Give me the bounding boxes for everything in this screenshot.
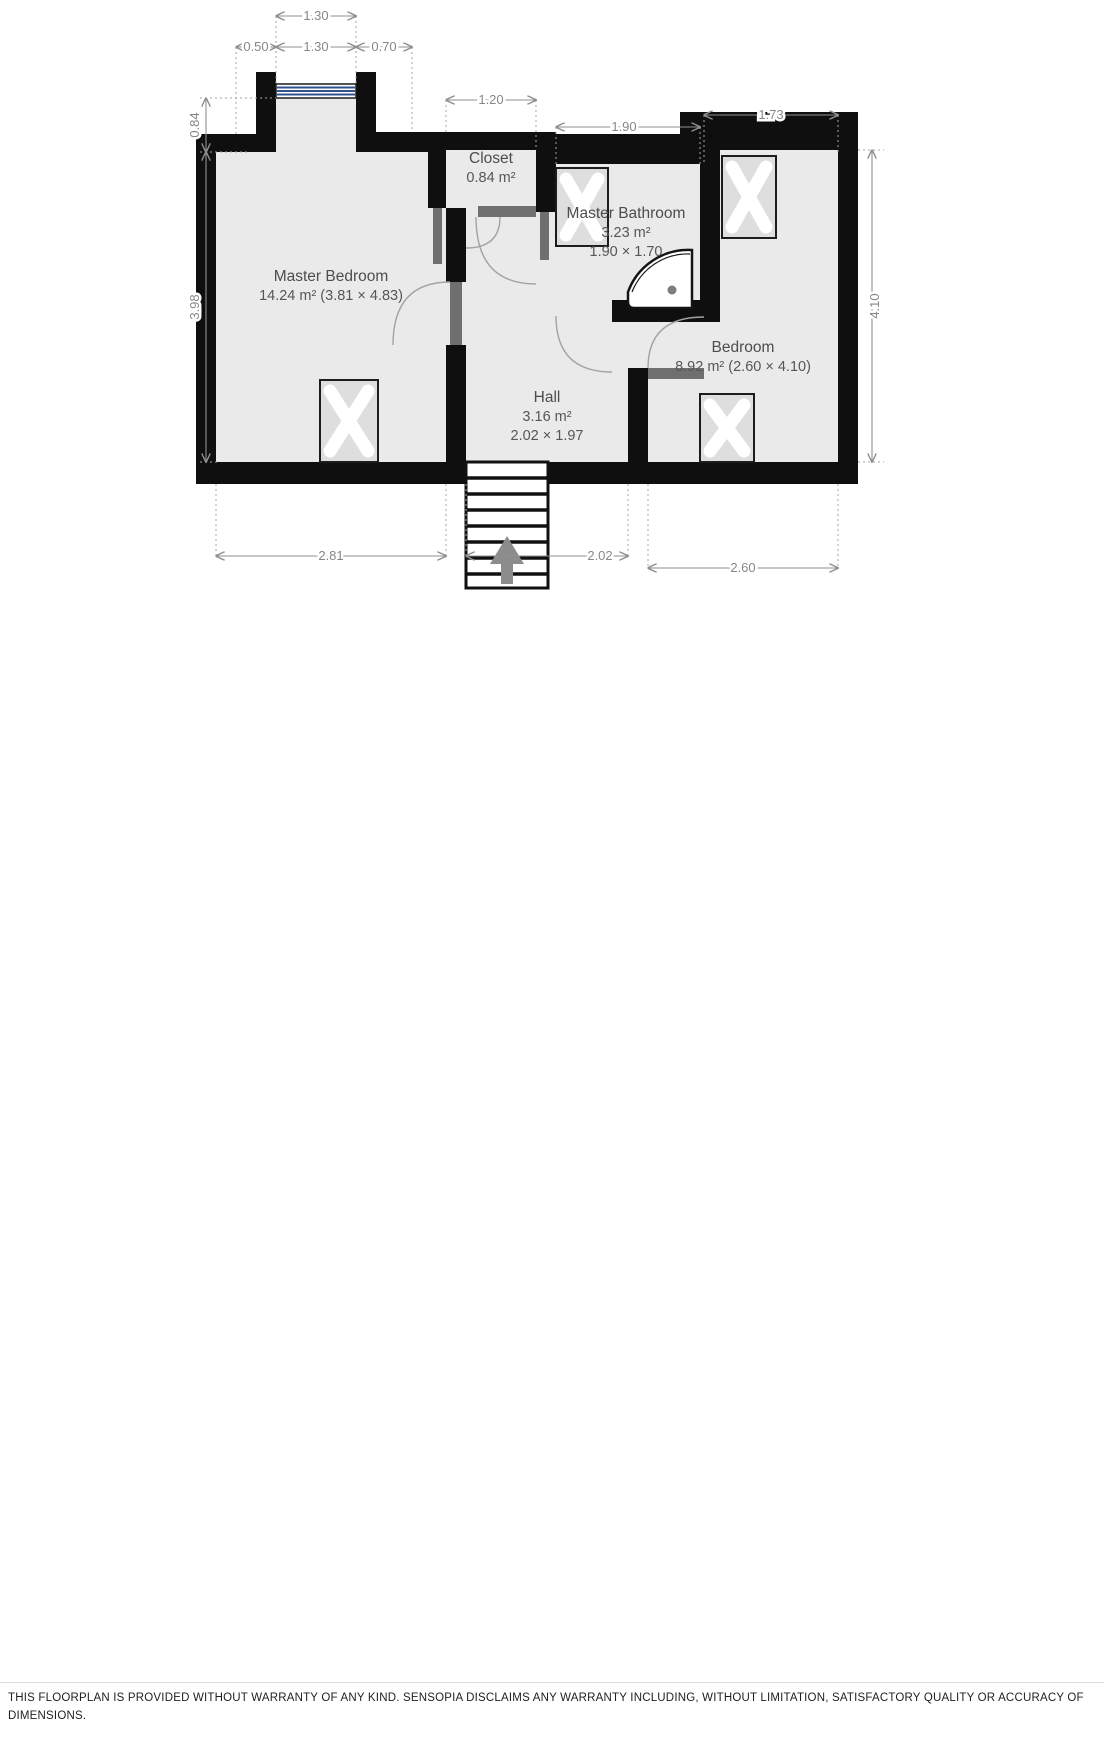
dim-right-of-window: 0.70 [371,39,396,54]
dim-dormer-depth: 0.84 [187,112,202,137]
master-bathroom-size: 1.90 × 1.70 [590,244,663,260]
hall-label: Hall [534,389,561,406]
skylight-icon-bedroom-top [722,156,776,238]
dim-closet-width: 1.20 [478,92,503,107]
bathroom-door-opening-floor [556,300,612,322]
wall-hall-left-lower [446,345,466,484]
master-bedroom-area: 14.24 m² (3.81 × 4.83) [259,288,403,304]
dim-window-width: 1.30 [303,39,328,54]
wall-bathroom-right [700,150,720,322]
dim-hall-width: 2.02 [587,548,612,563]
wall-dormer-right [356,72,376,152]
dim-bathroom-width: 1.90 [611,119,636,134]
closet-door-jamb-left [433,208,442,264]
dim-master-bedroom-height: 3.98 [187,294,202,319]
dim-bedroom-height: 4.10 [867,293,882,318]
wall-bottom-left [196,462,446,484]
wall-bathroom-top [556,134,700,164]
dim-window-width-outer: 1.30 [303,8,328,23]
wall-top-segment [376,132,428,152]
dim-left-of-window: 0.50 [243,39,268,54]
master-bathroom-area: 3.23 m² [601,225,650,241]
bedroom-door-opening-floor [628,322,648,368]
hall-size: 2.02 × 1.97 [511,428,584,444]
shower-drain [668,286,677,295]
closet-area: 0.84 m² [466,170,515,186]
wall-top-left [196,134,258,152]
skylight-icon-bedroom-bottom [700,394,754,462]
closet-door-jamb-right [540,212,549,260]
disclaimer-text: THIS FLOORPLAN IS PROVIDED WITHOUT WARRA… [0,1682,1104,1732]
master-bedroom-label: Master Bedroom [274,268,389,285]
wall-closet-right [536,150,556,212]
closet-door-leaf [478,206,536,217]
closet-label: Closet [469,150,514,167]
master-bathroom-label: Master Bathroom [567,205,686,222]
stairs [466,462,548,588]
wall-right-outer [838,112,858,484]
bedroom-label: Bedroom [712,339,775,356]
dim-bedroom-top-width: 1.73 [758,107,783,122]
floorplan: 1.30 0.50 1.30 0.70 1.20 1.90 1.73 0.84 … [0,0,1104,1741]
dormer-floor [276,98,356,156]
hall-area: 3.16 m² [522,409,571,425]
wall-dormer-left [256,72,276,152]
wall-hall-left-upper [446,208,466,282]
wall-bottom-right [548,462,858,484]
wall-closet-top [428,132,556,150]
master-bedroom-door-leaf [450,282,462,345]
dim-master-bedroom-width: 2.81 [318,548,343,563]
window-icon [276,84,356,98]
dim-bedroom-width: 2.60 [730,560,755,575]
skylight-icon-master-bedroom [320,380,378,462]
wall-hall-bedroom-divider [628,368,648,484]
bedroom-area: 8.92 m² (2.60 × 4.10) [675,359,811,375]
